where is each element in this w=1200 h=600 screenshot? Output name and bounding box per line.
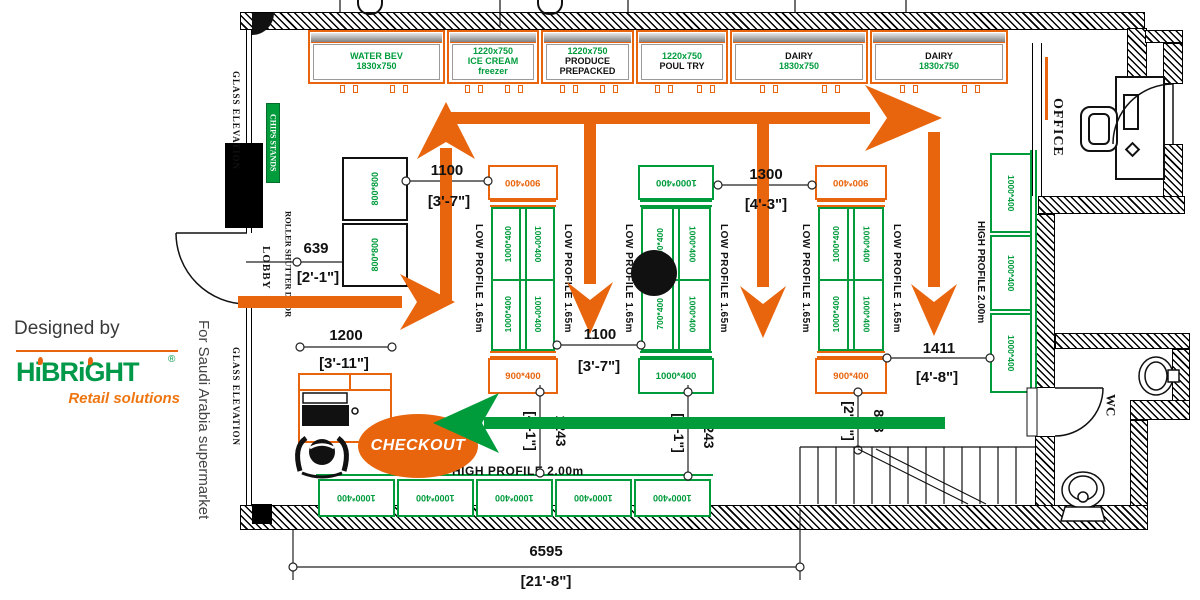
dim-6595-mm: 6595: [529, 543, 562, 560]
dim-6595-ft: [21'-8"]: [521, 573, 572, 590]
flow-arrows-orange: [238, 85, 957, 338]
stair-diagonal: [858, 449, 968, 504]
stair-diagonal: [876, 449, 986, 504]
dim-1100b-ft: [3'-7"]: [578, 358, 620, 375]
office-door: [1113, 84, 1173, 144]
dim-1200-ft: [3'-11"]: [319, 355, 369, 372]
checkout-arrow-green: [433, 393, 945, 453]
wc-door: [1027, 388, 1103, 436]
dim-1100b-mm: 1100: [584, 326, 617, 343]
floor-plan-page: { "branding": { "designed_by": "Designed…: [0, 0, 1200, 600]
dim-1300-mm: 1300: [749, 166, 782, 183]
plan-overlay: [4'-1"] 1243 [4'-1"] 1243 [2'-8"] 813: [0, 0, 1200, 600]
dim-639-ft: [2'-1"]: [297, 269, 339, 286]
entrance-arrow-bar: [238, 296, 402, 308]
down-arrow-bar-1: [584, 124, 596, 284]
dim-639-mm: 639: [303, 240, 328, 257]
cash-register: [302, 393, 358, 426]
dimension-lines: [246, 181, 990, 580]
dim-1300-ft: [4'-3"]: [745, 196, 787, 213]
dim-1200-mm: 1200: [329, 327, 362, 344]
green-arrow-bar: [484, 417, 945, 429]
down-arrow-head-2: [740, 286, 786, 338]
sink: [1139, 357, 1179, 395]
dim-1411-ft: [4'-8"]: [916, 369, 958, 386]
round-column: [631, 250, 677, 296]
top-arrow-bar: [443, 112, 870, 124]
dim-1100a-ft: [3'-7"]: [428, 193, 470, 210]
down-arrow-head-3: [911, 284, 957, 336]
toilet: [1061, 472, 1105, 521]
cashier-person: [298, 438, 347, 477]
dim-1100a-mm: 1100: [431, 162, 464, 179]
top-left-door-swing: [252, 13, 274, 35]
staircase: [800, 447, 1035, 504]
entrance-door: [176, 233, 247, 304]
down-arrow-bar-3: [928, 132, 940, 287]
grid-stub-lines: [340, 0, 906, 26]
dimension-ticks: [289, 177, 994, 571]
dim-1411-mm: 1411: [923, 340, 956, 357]
